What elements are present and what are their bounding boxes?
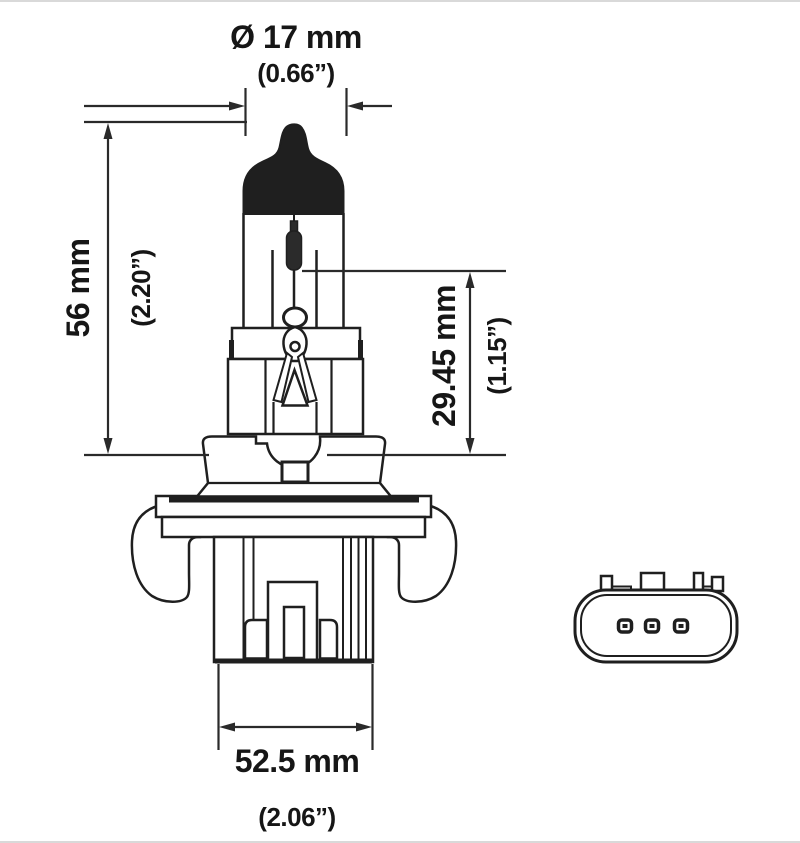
diameter-imperial-label: (0.66”) <box>257 58 334 88</box>
arrowhead-left <box>347 102 363 111</box>
arrowhead-up <box>104 123 113 139</box>
dimension-base-width: 52.5 mm (2.06”) <box>219 664 373 832</box>
bulb-black-tip <box>244 124 344 214</box>
light-center-metric-label: 29.45 mm <box>426 285 462 427</box>
base-width-imperial-label: (2.06”) <box>258 802 335 832</box>
length-imperial-label: (2.20”) <box>126 249 156 326</box>
light-center-imperial-label: (1.15”) <box>482 317 512 394</box>
image-border-top <box>0 0 800 2</box>
dimension-diameter: Ø 17 mm (0.66”) <box>84 19 392 136</box>
arrowhead-down <box>104 438 113 454</box>
support-pivot-hole <box>291 342 300 351</box>
arrowhead-right <box>356 723 372 732</box>
filament-capsule <box>287 231 302 270</box>
connector-tab <box>712 577 723 591</box>
arrowhead-down <box>466 438 475 454</box>
latch-right <box>320 620 337 659</box>
length-metric-label: 56 mm <box>60 239 96 338</box>
bulb-side-view <box>132 124 456 662</box>
connector-center-tab <box>641 573 664 591</box>
technical-drawing-page: Ø 17 mm (0.66”) 56 mm (2.20”) 29.45 mm (… <box>0 0 800 843</box>
arrowhead-up <box>466 272 475 288</box>
base-flange-lower-disc <box>162 517 425 537</box>
terminal-blade-slot <box>284 607 304 658</box>
arrowhead-right <box>229 102 245 111</box>
terminal-pin-2 <box>650 624 655 628</box>
lead-ring <box>284 308 307 327</box>
base-width-metric-label: 52.5 mm <box>235 743 360 779</box>
dimension-overall-length: 56 mm (2.20”) <box>60 122 247 455</box>
latch-left <box>245 620 267 659</box>
arrowhead-left <box>219 723 235 732</box>
collar-key-slot <box>282 462 308 482</box>
terminal-pin-1 <box>623 624 628 628</box>
diameter-metric-label: Ø 17 mm <box>230 19 362 55</box>
connector-outer-shell <box>575 590 737 662</box>
connector-front-view <box>575 573 737 662</box>
connector-tab <box>694 573 703 591</box>
terminal-pin-3 <box>679 624 684 628</box>
bulb-technical-drawing: Ø 17 mm (0.66”) 56 mm (2.20”) 29.45 mm (… <box>0 0 800 843</box>
